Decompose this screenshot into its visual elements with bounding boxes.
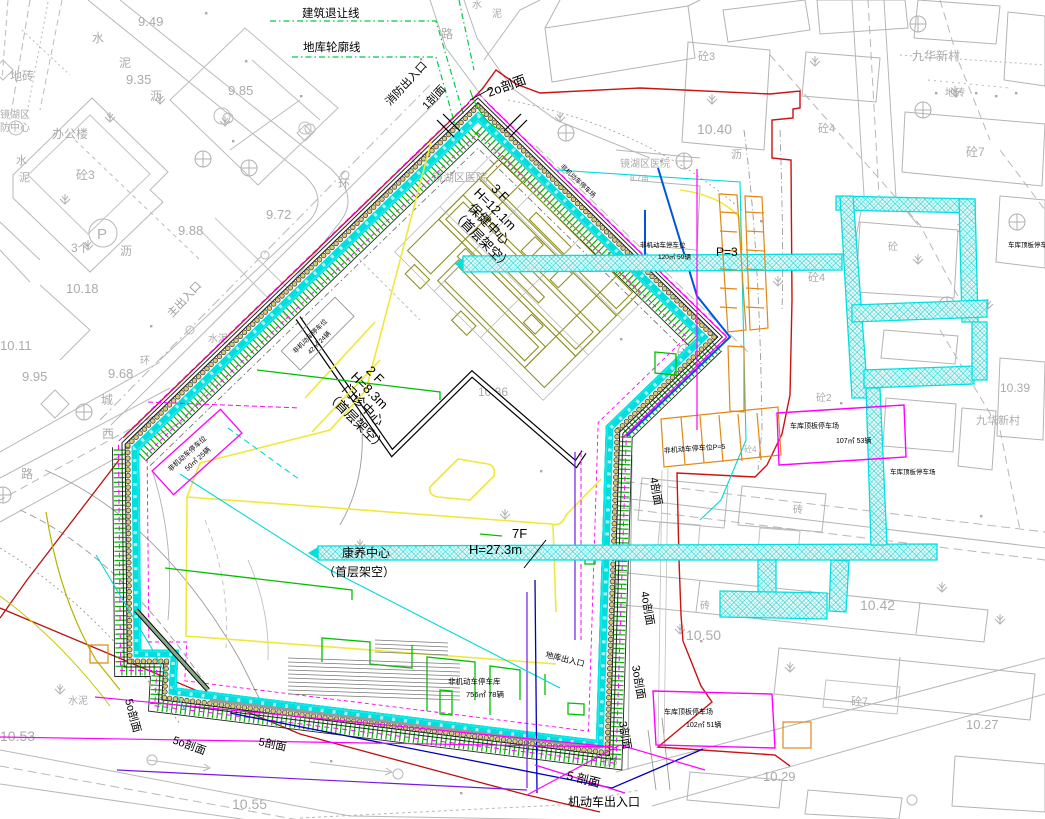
svg-text:城: 城 <box>101 393 113 407</box>
svg-text:镜湖区医院: 镜湖区医院 <box>620 157 670 170</box>
svg-text:10.53: 10.53 <box>0 728 35 744</box>
svg-text:102㎡ 51辆: 102㎡ 51辆 <box>686 720 721 729</box>
svg-text:120㎡ 59辆: 120㎡ 59辆 <box>658 252 691 261</box>
svg-text:镜湖区医院: 镜湖区医院 <box>432 170 487 184</box>
svg-text:西: 西 <box>102 427 114 441</box>
svg-text:砖: 砖 <box>700 599 710 612</box>
svg-text:756㎡ 78辆: 756㎡ 78辆 <box>466 689 504 699</box>
svg-text:车库顶板停车场: 车库顶板停车场 <box>790 421 839 430</box>
svg-text:九华新村: 九华新村 <box>976 413 1020 427</box>
svg-text:环: 环 <box>338 177 350 191</box>
svg-text:车库顶板停车场: 车库顶板停车场 <box>890 467 936 476</box>
svg-text:防中心: 防中心 <box>0 121 30 134</box>
svg-text:机动车出入口: 机动车出入口 <box>568 794 640 809</box>
svg-text:10.50: 10.50 <box>686 627 721 643</box>
svg-text:环: 环 <box>140 356 150 367</box>
svg-text:砼7: 砼7 <box>966 145 985 159</box>
svg-text:10.39: 10.39 <box>1000 381 1030 395</box>
svg-text:地砖: 地砖 <box>10 68 34 83</box>
svg-text:H=27.3m: H=27.3m <box>469 542 522 557</box>
svg-text:10.55: 10.55 <box>232 796 267 812</box>
svg-text:路: 路 <box>21 466 33 481</box>
svg-text:路: 路 <box>441 26 453 41</box>
svg-text:（首层架空）: （首层架空） <box>323 565 395 579</box>
svg-text:砼4: 砼4 <box>808 271 825 284</box>
svg-text:建筑退让线: 建筑退让线 <box>302 6 360 20</box>
svg-text:康养中心: 康养中心 <box>342 545 390 560</box>
svg-text:10.40: 10.40 <box>697 121 732 137</box>
svg-text:10.42: 10.42 <box>860 597 895 613</box>
svg-text:10.18: 10.18 <box>66 281 99 296</box>
svg-text:砼3: 砼3 <box>76 168 95 182</box>
svg-text:九华新村: 九华新村 <box>912 48 960 63</box>
svg-text:镜湖区: 镜湖区 <box>0 108 30 121</box>
svg-text:泥: 泥 <box>119 56 131 70</box>
svg-text:P=3: P=3 <box>716 245 738 259</box>
svg-text:非机动车停车位: 非机动车停车位 <box>640 240 686 249</box>
svg-text:9.72: 9.72 <box>266 207 291 222</box>
svg-text:3个: 3个 <box>71 241 90 255</box>
svg-text:水: 水 <box>16 154 27 167</box>
svg-text:107㎡ 53辆: 107㎡ 53辆 <box>836 436 871 445</box>
svg-text:9.95: 9.95 <box>22 369 47 384</box>
svg-text:泥: 泥 <box>492 7 502 20</box>
svg-text:7F: 7F <box>512 526 527 541</box>
svg-text:砼2: 砼2 <box>816 391 832 404</box>
svg-text:砼3: 砼3 <box>698 50 715 63</box>
svg-text:办公楼: 办公楼 <box>52 126 88 141</box>
svg-text:10.27: 10.27 <box>966 717 999 732</box>
svg-text:沥: 沥 <box>150 89 162 103</box>
svg-text:沥: 沥 <box>120 244 132 258</box>
svg-text:9.49: 9.49 <box>138 14 163 29</box>
svg-text:水泥: 水泥 <box>68 694 88 707</box>
svg-text:砼4: 砼4 <box>744 444 757 454</box>
svg-text:砼4: 砼4 <box>818 122 835 135</box>
svg-text:砼: 砼 <box>888 240 898 253</box>
svg-text:砼7: 砼7 <box>851 695 868 708</box>
svg-text:9.88: 9.88 <box>178 223 203 238</box>
svg-text:车库顶板停车场: 车库顶板停车场 <box>664 707 713 716</box>
svg-text:水: 水 <box>92 31 104 45</box>
svg-text:P: P <box>97 226 107 243</box>
svg-text:砖: 砖 <box>793 503 803 516</box>
svg-text:9.68: 9.68 <box>108 366 133 381</box>
svg-text:车库顶板停车场: 车库顶板停车场 <box>1008 240 1045 249</box>
svg-text:非机动车停车库: 非机动车停车库 <box>448 676 501 686</box>
svg-text:地砖: 地砖 <box>945 86 965 99</box>
svg-text:沥: 沥 <box>731 148 742 161</box>
svg-text:水: 水 <box>472 0 482 11</box>
svg-text:10.29: 10.29 <box>763 769 796 784</box>
svg-text:地库轮廓线: 地库轮廓线 <box>303 40 361 54</box>
svg-text:泥: 泥 <box>19 171 30 184</box>
svg-text:9.35: 9.35 <box>126 72 151 87</box>
svg-text:10.11: 10.11 <box>0 338 32 353</box>
svg-text:9.85: 9.85 <box>228 83 253 98</box>
